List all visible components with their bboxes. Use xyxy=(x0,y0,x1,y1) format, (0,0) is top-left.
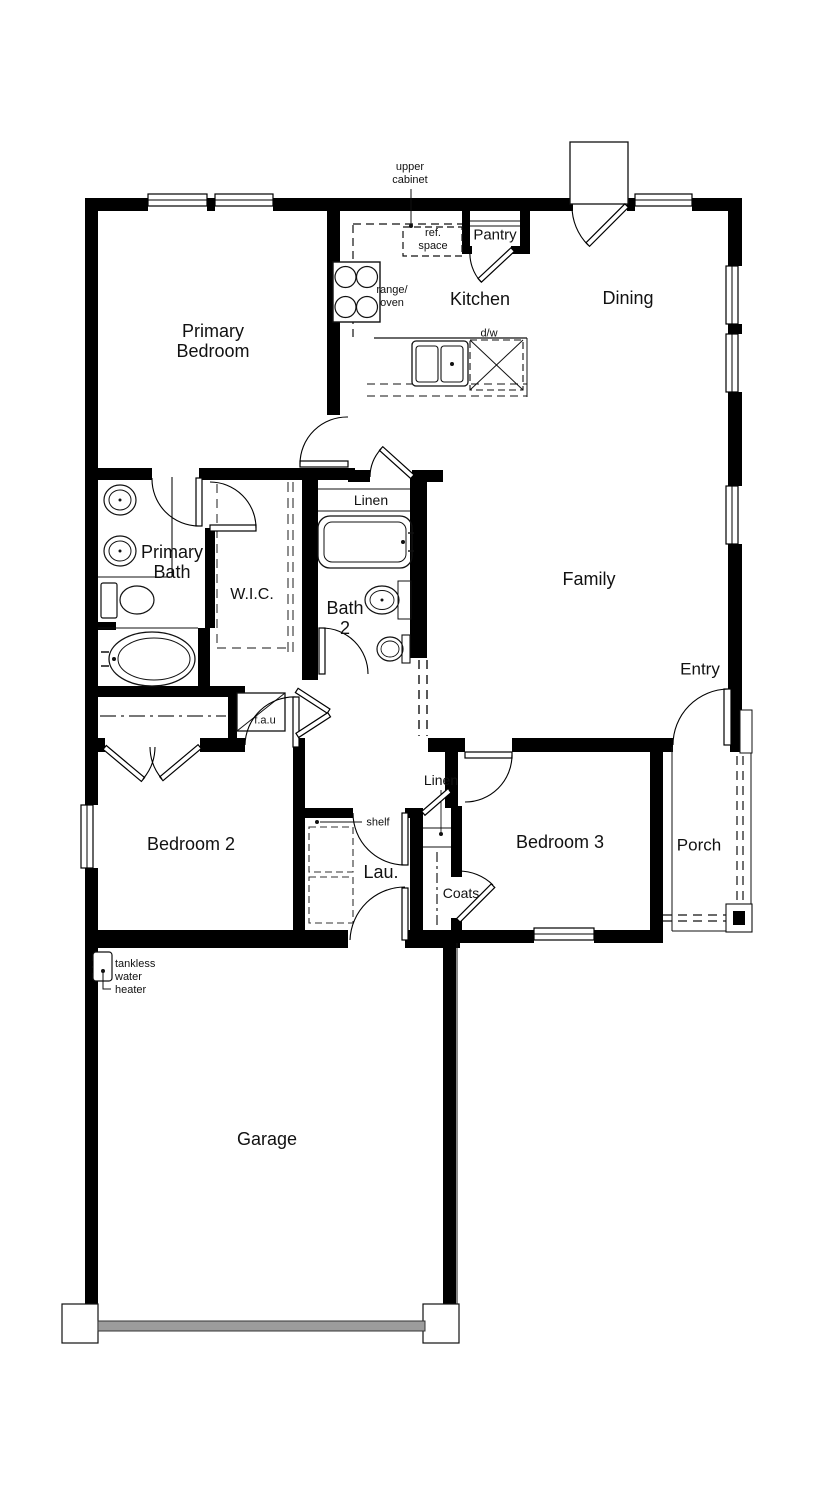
door-bedroom3 xyxy=(465,752,512,802)
door-bedroom2-closet xyxy=(103,745,201,782)
door-pantry xyxy=(470,248,514,282)
room-label-garage: Garage xyxy=(237,1129,297,1149)
kitchen-sink xyxy=(412,341,468,386)
garage-door xyxy=(98,1321,425,1331)
annotation-upper-cabinet: upper cabinet xyxy=(392,161,427,187)
window-bedroom3-bottom xyxy=(534,928,594,940)
annotation-dishwasher: d/w xyxy=(480,327,497,340)
door-primary-bedroom xyxy=(300,417,348,467)
room-label-bedroom2: Bedroom 2 xyxy=(147,834,235,854)
window-dining-right-2 xyxy=(726,334,738,392)
door-entry xyxy=(673,689,731,745)
bathtub-primary xyxy=(101,632,195,686)
porch-post xyxy=(726,904,752,932)
room-label-bedroom3: Bedroom 3 xyxy=(516,832,604,852)
bath-sink-2 xyxy=(104,536,136,566)
garage-step-right xyxy=(423,1304,459,1343)
door-primary-bath xyxy=(152,478,202,526)
door-front-dining xyxy=(572,204,628,246)
garage-step-left xyxy=(62,1304,98,1343)
dishwasher xyxy=(470,340,523,390)
room-label-laundry: Lau. xyxy=(363,862,398,882)
room-label-linen-lower: Linen xyxy=(424,773,458,789)
room-label-kitchen: Kitchen xyxy=(450,289,510,309)
annotation-range-oven: range/ oven xyxy=(376,284,407,310)
room-label-primary-bedroom: Primary Bedroom xyxy=(176,321,249,361)
room-label-entry: Entry xyxy=(680,659,720,678)
room-label-porch: Porch xyxy=(677,835,721,854)
bath-sink-1 xyxy=(104,485,136,515)
range-oven xyxy=(333,262,380,322)
room-label-pantry: Pantry xyxy=(473,228,516,245)
window-primary-bedroom-1 xyxy=(148,194,207,206)
toilet-primary xyxy=(101,583,154,618)
room-label-family: Family xyxy=(563,569,616,589)
window-bedroom2-left xyxy=(81,805,93,868)
door-linen-upper xyxy=(370,447,414,479)
washer-dryer xyxy=(309,827,353,923)
floor-plan: Primary Bedroom Kitchen Dining Pantry Fa… xyxy=(0,0,840,1487)
door-fau-bifold xyxy=(295,688,330,737)
pantry-shelf xyxy=(470,221,520,226)
room-label-primary-bath: Primary Bath xyxy=(141,542,203,582)
room-label-coats: Coats xyxy=(443,886,480,902)
room-label-wic: W.I.C. xyxy=(230,586,274,604)
toilet-bath2 xyxy=(377,635,410,663)
window-dining-right-1 xyxy=(726,266,738,324)
room-label-dining: Dining xyxy=(602,288,653,308)
floor-plan-graphics xyxy=(0,0,840,1487)
porch-column-base-top xyxy=(740,710,752,753)
annotation-shelf: shelf xyxy=(366,816,389,829)
bathtub-2 xyxy=(318,516,414,568)
window-primary-bedroom-2 xyxy=(215,194,273,206)
door-laundry-garage xyxy=(350,887,408,940)
room-label-linen-upper: Linen xyxy=(354,493,388,509)
annotation-tankless-water-heater: tankless water heater xyxy=(115,958,155,998)
bath2-sink xyxy=(365,581,411,619)
room-label-bath2: Bath 2 xyxy=(326,598,363,638)
window-dining-top xyxy=(635,194,692,206)
annotation-fau: f.a.u xyxy=(254,714,275,727)
window-family-right xyxy=(726,486,738,544)
front-door-landing xyxy=(570,142,628,204)
annotation-ref-space: ref. space xyxy=(418,227,447,253)
